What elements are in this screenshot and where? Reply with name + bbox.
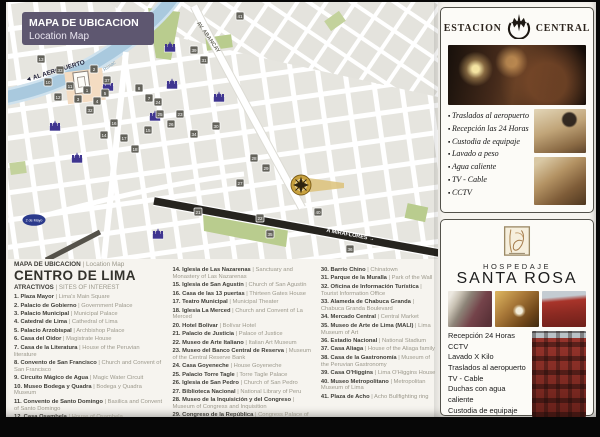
santa-rosa-bedroom-photo [448, 291, 492, 327]
map-numbered-marker: 10 [44, 78, 52, 86]
svg-text:15: 15 [145, 128, 151, 133]
location-map: Rio Rimac AV. ABANCAY A MIRAFLORES → ◄ [8, 2, 438, 259]
map-numbered-marker: 26 [167, 120, 175, 128]
legend-entry: 3. Palacio Municipal | Municipal Palace [14, 311, 163, 318]
map-numbered-marker: 34 [190, 130, 198, 138]
legend-column-3: 30. Barrio Chino | Chinatown31. Parque d… [321, 261, 436, 417]
estacion-service-item: Lavado a peso [448, 148, 530, 161]
map-numbered-marker: 7 [145, 94, 153, 102]
legend-entry: 33. Alameda de Chabuca Granda | Chabuca … [321, 299, 436, 313]
map-numbered-marker: 17 [120, 134, 128, 142]
legend-entry: 11. Convento de Santo Domingo | Basilica… [14, 399, 163, 413]
map-numbered-marker: 14 [100, 131, 108, 139]
estacion-room-photo-1 [534, 109, 586, 153]
map-numbered-marker: 22 [256, 214, 264, 222]
estacion-title-left: ESTACION [444, 23, 502, 34]
svg-text:29: 29 [263, 166, 269, 171]
map-numbered-marker: 31 [200, 56, 208, 64]
svg-text:31: 31 [201, 58, 207, 63]
svg-text:18: 18 [132, 147, 138, 152]
santa-rosa-service-item: Duchas con agua caliente [448, 384, 527, 405]
legend-entry: 25. Palacio Torre Tagle | Torre Tagle Pa… [172, 372, 311, 379]
santa-rosa-building-photo [532, 331, 586, 417]
estacion-title-right: CENTRAL [536, 23, 591, 34]
legend-entry: 37. Casa Aliaga | House of the Aliaga fa… [321, 346, 436, 353]
legend-list-1: 1. Plaza Mayor | Lima's Main Square2. Pa… [14, 294, 163, 417]
map-numbered-marker: 35 [266, 230, 274, 238]
legend-entry: 6. Casa del Oidor | Magistrate House [14, 336, 163, 343]
svg-text:35: 35 [267, 232, 273, 237]
legend-list-2: 14. Iglesia de Las Nazarenas | Sanctuary… [172, 267, 311, 417]
legend-entry: 24. Casa Goyeneche | House Goyeneche [172, 363, 311, 370]
svg-text:34: 34 [191, 132, 197, 137]
santa-rosa-service-item: Recepción 24 Horas [448, 331, 527, 342]
santa-rosa-service-item: Custodia de equipaje [448, 406, 527, 417]
map-numbered-marker: 11 [66, 82, 74, 90]
map-numbered-marker: 1 [83, 86, 91, 94]
santa-rosa-photo-row [448, 291, 586, 327]
santa-rosa-services-list: Recepción 24 HorasCCTVLavado X KiloTrasl… [448, 331, 527, 417]
map-numbered-marker: 23 [176, 110, 184, 118]
legend-entry: 32. Oficina de Información Turística | T… [321, 284, 436, 298]
estacion-lobby-photo [448, 45, 586, 105]
map-numbered-marker: 16 [110, 119, 118, 127]
estacion-service-item: CCTV [448, 187, 530, 200]
svg-text:12: 12 [55, 95, 61, 100]
legend-entry: 38. Casa de la Gastronomía | Museum of t… [321, 355, 436, 369]
map-subtitle: Location Map [29, 31, 89, 42]
estacion-central-title: ESTACION CENTRAL [448, 14, 586, 42]
legend-entry: 29. Congreso de la República | Congress … [172, 412, 311, 417]
svg-text:37: 37 [104, 78, 110, 83]
legend-entry: 28. Museo de la Inquisición y del Congre… [172, 397, 311, 411]
legend-entry: 1. Plaza Mayor | Lima's Main Square [14, 294, 163, 301]
svg-text:41: 41 [237, 14, 243, 19]
estacion-service-item: TV - Cable [448, 174, 530, 187]
svg-text:27: 27 [237, 181, 243, 186]
svg-text:21: 21 [195, 210, 201, 215]
svg-text:33: 33 [57, 68, 63, 73]
map-numbered-marker: 15 [144, 126, 152, 134]
map-numbered-marker: 41 [236, 12, 244, 20]
map-legend: MAPA DE UBICACION | Location Map CENTRO … [14, 261, 436, 417]
map-numbered-marker: 32 [86, 106, 94, 114]
map-numbered-marker: 4 [93, 97, 101, 105]
map-title-banner: MAPA DE UBICACION Location Map [22, 12, 154, 45]
legend-entry: 40. Museo Metropolitano | Metropolitan M… [321, 379, 436, 393]
svg-text:7: 7 [148, 96, 151, 101]
map-numbered-marker: 39 [190, 46, 198, 54]
map-numbered-marker: 37 [103, 76, 111, 84]
plaza-dos-de-mayo-label: 2 de Mayo [26, 219, 43, 223]
map-numbered-marker: 21 [194, 208, 202, 216]
svg-text:13: 13 [38, 57, 44, 62]
legend-entry: 20. Hotel Bolívar | Bolívar Hotel [172, 323, 311, 330]
legend-entry: 35. Museo de Arte de Lima (MALI) | Lima … [321, 323, 436, 337]
svg-text:30: 30 [213, 124, 219, 129]
legend-title: CENTRO DE LIMA [14, 269, 163, 283]
rose-sketch-logo [503, 243, 531, 260]
svg-text:26: 26 [168, 122, 174, 127]
map-numbered-marker: 30 [212, 122, 220, 130]
legend-entry: 2. Palacio de Gobierno | Government Pala… [14, 303, 163, 310]
legend-entry: 39. Casa O'Higgins | Lima O'Higgins Hous… [321, 370, 436, 377]
map-numbered-marker: 29 [262, 164, 270, 172]
map-numbered-marker: 28 [250, 154, 258, 162]
legend-entry: 17. Teatro Municipal | Municipal Theater [172, 299, 311, 306]
svg-text:3: 3 [77, 97, 80, 102]
estacion-service-item: Traslados al aeropuerto [448, 110, 530, 123]
legend-entry: 30. Barrio Chino | Chinatown [321, 267, 436, 274]
legend-entry: 9. Circuito Mágico de Agua | Magic Water… [14, 375, 163, 382]
svg-text:32: 32 [87, 108, 93, 113]
map-numbered-marker: 2 [90, 65, 98, 73]
santa-rosa-service-item: CCTV [448, 342, 527, 353]
legend-entry: 23. Museo del Banco Central de Reserva |… [172, 348, 311, 362]
scanned-brochure-page: Rio Rimac AV. ABANCAY A MIRAFLORES → ◄ [6, 2, 596, 417]
map-numbered-marker: 3 [74, 95, 82, 103]
estacion-service-item: Custodia de equipaje [448, 136, 530, 149]
legend-subtitle: ATRACTIVOS | SITES OF INTEREST [14, 284, 163, 291]
svg-text:8: 8 [138, 86, 141, 91]
map-numbered-marker: 24 [154, 98, 162, 106]
svg-text:23: 23 [177, 112, 183, 117]
map-numbered-marker: 25 [156, 110, 164, 118]
santa-rosa-service-item: Lavado X Kilo [448, 352, 527, 363]
map-numbered-marker: 13 [37, 55, 45, 63]
svg-text:40: 40 [315, 210, 321, 215]
svg-text:24: 24 [155, 100, 161, 105]
svg-text:14: 14 [101, 133, 107, 138]
legend-entry: 36. Estadio Nacional | National Stadium [321, 338, 436, 345]
legend-entry: 10. Museo Bodega y Quadra | Bodega y Qua… [14, 384, 163, 398]
svg-text:28: 28 [251, 156, 257, 161]
svg-text:1: 1 [86, 88, 89, 93]
estacion-services-list: Traslados al aeropuertoRecepción las 24 … [448, 110, 530, 205]
legend-entry: 7. Casa de la Literatura | House of the … [14, 345, 163, 359]
legend-entry: 21. Palacio de Justicia | Palace of Just… [172, 331, 311, 338]
legend-entry: 15. Iglesia de San Agustín | Church of S… [172, 282, 311, 289]
map-title: MAPA DE UBICACION [29, 17, 139, 29]
legend-entry: 27. Biblioteca Nacional | National Libra… [172, 389, 311, 396]
legend-entry: 4. Catedral de Lima | Cathedral of Lima [14, 319, 163, 326]
santa-rosa-title: SANTA ROSA [448, 271, 586, 288]
legend-column-2: 14. Iglesia de Las Nazarenas | Sanctuary… [172, 261, 311, 417]
legend-entry: 8. Convento de San Francisco | Church an… [14, 360, 163, 374]
legend-entry: 41. Plaza de Acho | Acho Bullfighting ri… [321, 394, 436, 401]
legend-entry: 5. Palacio Arzobispal | Archbishop Palac… [14, 328, 163, 335]
estacion-side-photos [534, 109, 586, 205]
map-numbered-marker: 36 [346, 245, 354, 253]
legend-entry: 31. Parque de la Muralla | Park of the W… [321, 275, 436, 282]
legend-column-1: MAPA DE UBICACION | Location Map CENTRO … [14, 261, 163, 417]
estacion-service-item: Recepción las 24 Horas [448, 123, 530, 136]
santa-rosa-service-item: Traslados al aeropuerto [448, 363, 527, 374]
santa-rosa-terrace-photo [542, 291, 586, 327]
map-numbered-marker: 8 [135, 84, 143, 92]
map-numbered-marker: 40 [314, 208, 322, 216]
svg-text:17: 17 [121, 136, 127, 141]
legend-entry: 14. Iglesia de Las Nazarenas | Sanctuary… [172, 267, 311, 281]
svg-text:2: 2 [93, 67, 96, 72]
map-numbered-marker: 5 [101, 89, 109, 97]
map-numbered-marker: 12 [54, 93, 62, 101]
santa-rosa-header: HOSPEDAJE SANTA ROSA [448, 226, 586, 288]
legend-header: MAPA DE UBICACION | Location Map [14, 261, 163, 268]
compass-rose-icon [505, 14, 533, 42]
estacion-service-item: Agua caliente [448, 161, 530, 174]
svg-text:4: 4 [96, 99, 99, 104]
legend-entry: 12. Casa Osambela | House of Osambela [14, 414, 163, 417]
hotel-card-hospedaje-santa-rosa: HOSPEDAJE SANTA ROSA Recepción 24 HorasC… [440, 219, 594, 416]
legend-entry: 22. Museo de Arte Italiano | Italian Art… [172, 340, 311, 347]
map-numbered-marker: 33 [56, 66, 64, 74]
svg-text:16: 16 [111, 121, 117, 126]
santa-rosa-service-item: TV - Cable [448, 374, 527, 385]
map-numbered-marker: 18 [131, 145, 139, 153]
legend-entry: 34. Mercado Central | Central Market [321, 314, 436, 321]
svg-text:5: 5 [104, 91, 107, 96]
legend-entry: 18. Iglesia La Merced | Church and Conve… [172, 308, 311, 322]
legend-entry: 16. Casa de las 13 puertas | Thirteen Ga… [172, 291, 311, 298]
plaza-dos-de-mayo-badge: 2 de Mayo [23, 214, 46, 226]
svg-text:22: 22 [257, 216, 263, 221]
svg-text:11: 11 [68, 84, 73, 89]
hotel-card-estacion-central: ESTACION CENTRAL Traslados al aeropuerto… [440, 7, 594, 213]
svg-text:36: 36 [347, 247, 353, 252]
map-numbered-marker: 27 [236, 179, 244, 187]
map-canvas: Rio Rimac AV. ABANCAY A MIRAFLORES → ◄ [8, 2, 438, 259]
svg-text:39: 39 [191, 48, 197, 53]
svg-text:10: 10 [45, 80, 51, 85]
svg-text:25: 25 [157, 112, 163, 117]
santa-rosa-breakfast-photo [495, 291, 539, 327]
estacion-room-photo-2 [534, 157, 586, 205]
legend-entry: 26. Iglesia de San Pedro | Church of San… [172, 380, 311, 387]
legend-list-3: 30. Barrio Chino | Chinatown31. Parque d… [321, 267, 436, 401]
